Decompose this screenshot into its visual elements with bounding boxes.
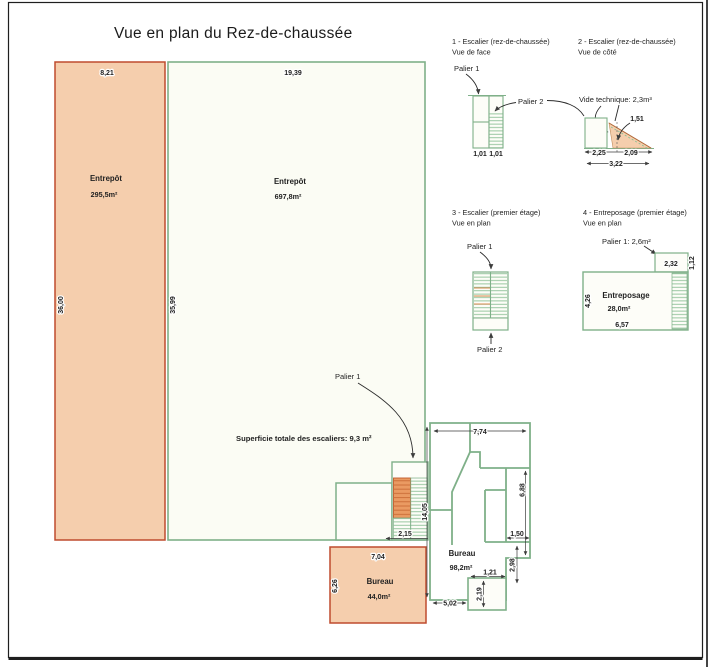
detail-4-area: 28,0m² xyxy=(608,304,631,313)
detail-1: 1 - Escalier (rez-de-chaussée) Vue de fa… xyxy=(452,37,584,158)
detail-3-palier2-label: Palier 2 xyxy=(477,345,502,354)
detail-2-subtitle: Vue de côté xyxy=(578,48,617,57)
office-wall-middle xyxy=(452,423,470,545)
office-dim-notch-w: 1,21 xyxy=(483,570,497,577)
detail-2-dim-a: 2,25 xyxy=(592,150,606,157)
detail-3-palier1-label: Palier 1 xyxy=(467,242,492,251)
detail-1-title: 1 - Escalier (rez-de-chaussée) xyxy=(452,37,550,46)
office-dim-notch-h: 2,19 xyxy=(477,587,484,601)
entrepot-left-dim-side: 36,00 xyxy=(58,296,65,314)
detail-2-dim-b: 2,09 xyxy=(624,150,638,157)
stairwell: 2,15 xyxy=(386,462,428,540)
entrepot-left-label: Entrepôt xyxy=(90,174,122,183)
detail-2-title: 2 - Escalier (rez-de-chaussée) xyxy=(578,37,676,46)
bureau-small-label: Bureau xyxy=(367,577,394,586)
detail-3-palier1-leader xyxy=(480,252,491,269)
office-label: Bureau xyxy=(449,549,476,558)
detail-2-note-leader-2 xyxy=(615,105,619,121)
detail-3-subtitle: Vue en plan xyxy=(452,219,491,228)
bureau-small-dim-top: 7,04 xyxy=(371,554,385,561)
detail-4-note-leader xyxy=(644,246,656,254)
office-dim-room-w: 1,50 xyxy=(510,531,524,538)
office-outline xyxy=(430,423,530,600)
detail-3: 3 - Escalier (premier étage) Vue en plan… xyxy=(452,208,540,354)
office-notch-room xyxy=(468,578,506,610)
bureau-small-area: 44,0m² xyxy=(368,592,391,601)
floor-plan-page: Vue en plan du Rez-de-chaussée 8,21 36,0… xyxy=(0,0,710,667)
entrepot-left-room: 8,21 36,00 Entrepôt 295,5m² xyxy=(55,62,165,540)
stairs-total-note: Superficie totale des escaliers: 9,3 m² xyxy=(236,434,372,443)
entrepot-main-dim-top: 19,39 xyxy=(284,70,302,77)
bureau-small-room: 7,04 6,26 Bureau 44,0m² xyxy=(330,547,426,623)
detail-2-dim-total: 3,22 xyxy=(609,161,623,168)
office-annex: 7,74 14,05 6,88 1,50 2,98 1,21 2,19 5,02… xyxy=(422,423,530,610)
detail-1-subtitle: Vue de face xyxy=(452,48,491,57)
detail-4-stair-strip xyxy=(672,273,687,329)
office-dim-top: 7,74 xyxy=(473,429,487,436)
detail-4-dim-bottom: 6,57 xyxy=(615,322,629,329)
office-dim-bottom: 5,02 xyxy=(443,601,457,608)
detail-1-stair-hatch xyxy=(490,112,503,148)
detail-4-note: Palier 1: 2,6m² xyxy=(602,237,651,246)
detail-2-note: Vide technique: 2,3m³ xyxy=(579,95,652,104)
entrepot-left-dim-top: 8,21 xyxy=(100,70,114,77)
plan-palier1-label: Palier 1 xyxy=(335,372,360,381)
office-dim-room-h: 2,98 xyxy=(510,558,517,572)
office-area: 98,2m² xyxy=(450,563,473,572)
office-dim-left: 14,05 xyxy=(422,503,429,521)
detail-2-dim-height: 1,51 xyxy=(630,116,644,123)
floor-plan-drawing: Vue en plan du Rez-de-chaussée 8,21 36,0… xyxy=(0,0,710,667)
entrepot-main-label: Entrepôt xyxy=(274,177,306,186)
detail-3-title: 3 - Escalier (premier étage) xyxy=(452,208,540,217)
detail-1-dim-left: 1,01 xyxy=(473,151,487,158)
bureau-small-dim-side: 6,26 xyxy=(332,579,339,593)
entrepot-main-room: 19,39 35,99 Entrepôt 697,8m² xyxy=(168,62,425,540)
page-title: Vue en plan du Rez-de-chaussée xyxy=(114,25,353,42)
entrepot-main-area: 697,8m² xyxy=(275,192,302,201)
detail-4-label: Entreposage xyxy=(602,291,650,300)
detail-4-dim-palier-w: 2,32 xyxy=(664,261,678,268)
detail-1-palier1-label: Palier 1 xyxy=(454,64,479,73)
detail-4-dim-palier-h: 1,12 xyxy=(689,256,696,270)
detail-4-dim-left: 4,26 xyxy=(585,294,592,308)
detail-1-dim-right: 1,01 xyxy=(489,151,503,158)
detail-1-palier1-leader xyxy=(466,74,479,94)
entrepot-main-dim-side: 35,99 xyxy=(170,296,177,314)
stair-flight-orange-hatch xyxy=(394,478,411,518)
office-wall-upper-right xyxy=(470,452,530,468)
annex-room xyxy=(336,483,392,540)
detail-1-palier2-label: Palier 2 xyxy=(518,97,543,106)
detail-4: 4 - Entreposage (premier étage) Vue en p… xyxy=(583,208,696,330)
detail-4-title: 4 - Entreposage (premier étage) xyxy=(583,208,687,217)
detail-4-subtitle: Vue en plan xyxy=(583,219,622,228)
detail-2-palier-box xyxy=(585,118,607,148)
office-dim-right: 6,88 xyxy=(520,483,527,497)
detail-2: 2 - Escalier (rez-de-chaussée) Vue de cô… xyxy=(578,37,676,168)
entrepot-left-area: 295,5m² xyxy=(91,190,118,199)
stair-dim: 2,15 xyxy=(398,531,412,538)
